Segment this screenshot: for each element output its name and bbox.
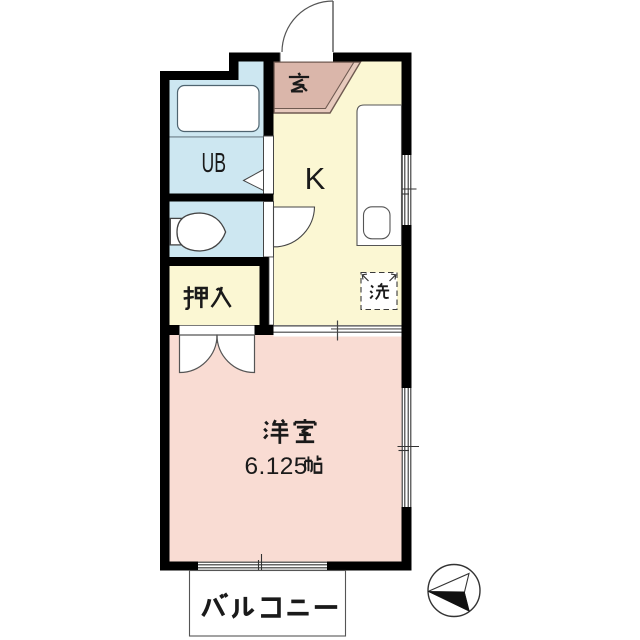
svg-text:UB: UB xyxy=(202,147,227,178)
svg-text:6.125: 6.125 xyxy=(245,453,308,480)
svg-text:K: K xyxy=(305,161,326,196)
